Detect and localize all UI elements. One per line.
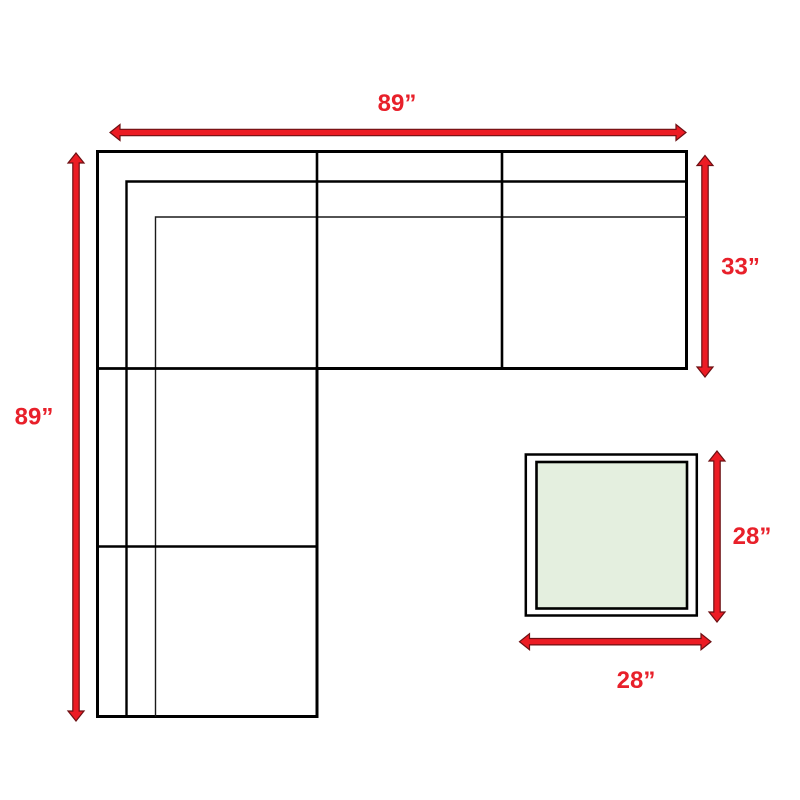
svg-text:28”: 28” xyxy=(733,523,772,550)
svg-text:89”: 89” xyxy=(15,404,54,431)
svg-text:89”: 89” xyxy=(378,90,417,117)
svg-text:28”: 28” xyxy=(617,667,656,694)
svg-text:33”: 33” xyxy=(721,254,760,281)
